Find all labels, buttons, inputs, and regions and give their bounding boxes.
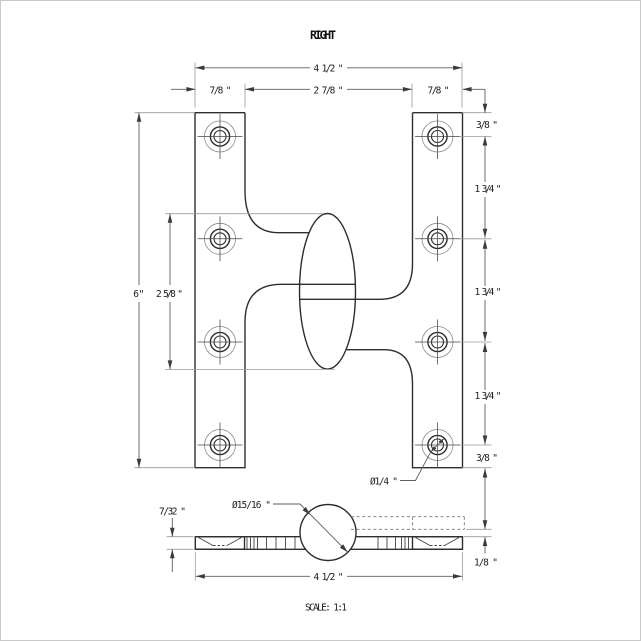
left-pad xyxy=(195,537,244,550)
drawing-sheet: RIGHT 4 1/2 " 7/8 " 2 7/8 " 7/8 " 3/8 " … xyxy=(0,0,641,641)
screw-hole xyxy=(198,423,243,468)
screw-hole xyxy=(198,216,243,261)
screw-hole xyxy=(198,114,243,159)
right-leaf-lower-fillet xyxy=(346,350,413,384)
dim-leaf-thickness: 7/32 " xyxy=(159,507,186,518)
screw-hole xyxy=(415,320,460,365)
hidden-offset-leaf xyxy=(351,517,464,530)
dim-right-leaf-width: 7/8 " xyxy=(428,85,450,96)
dim-hole-pitch-2: 1 3/4 " xyxy=(475,287,502,298)
left-leaf-outline xyxy=(195,113,245,468)
scale-label: SCALE: 1:1 xyxy=(305,603,347,614)
dim-bottom-margin: 3/8 " xyxy=(476,453,498,464)
dim-top-margin: 3/8 " xyxy=(476,120,498,131)
dim-hole-pitch-3: 1 3/4 " xyxy=(475,391,502,402)
left-leaf-upper-fillet xyxy=(245,191,309,233)
dim-hole-pitch-1: 1 3/4 " xyxy=(475,184,502,195)
dim-knuckle-length: 2 5/8 " xyxy=(156,289,183,300)
right-leaf-outline xyxy=(413,113,463,468)
dim-overall-height: 6" xyxy=(133,289,144,300)
dim-leaf-offset: 1/8 " xyxy=(474,558,498,569)
right-pad xyxy=(413,537,463,550)
left-countersink xyxy=(199,538,242,546)
dim-left-leaf-width: 7/8 " xyxy=(210,85,232,96)
screw-hole xyxy=(415,114,460,159)
screw-hole xyxy=(415,216,460,261)
bottom-view xyxy=(195,504,464,561)
view-title: RIGHT xyxy=(310,28,337,42)
hinge-technical-drawing: RIGHT 4 1/2 " 7/8 " 2 7/8 " 7/8 " 3/8 " … xyxy=(1,1,640,640)
dim-knuckle-diameter: Ø15/16 " xyxy=(232,500,271,511)
right-countersink xyxy=(416,538,460,546)
knuckle-ellipse xyxy=(300,213,356,369)
front-view xyxy=(195,113,463,468)
dim-center-span: 2 7/8 " xyxy=(314,85,344,96)
dim-overall-width-bottom: 4 1/2 " xyxy=(314,572,344,583)
screw-hole xyxy=(198,320,243,365)
dim-screw-hole-diameter: Ø1/4 " xyxy=(370,477,398,488)
dim-overall-width-top: 4 1/2 " xyxy=(314,64,344,75)
